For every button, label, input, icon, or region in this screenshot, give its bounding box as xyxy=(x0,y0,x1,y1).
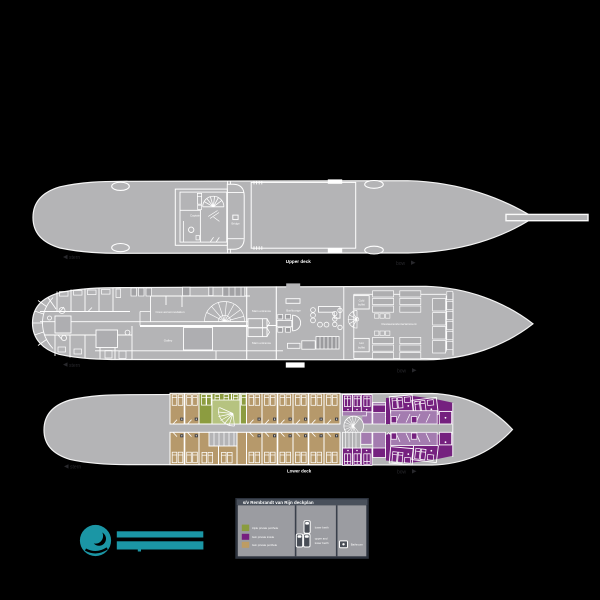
svg-text:Main entrance: Main entrance xyxy=(252,309,271,313)
svg-text:stern: stern xyxy=(69,255,80,261)
svg-text:Bar/lounge: Bar/lounge xyxy=(286,309,301,313)
svg-text:triple private porthole: triple private porthole xyxy=(252,526,279,530)
svg-text:Restaurant/entertainment: Restaurant/entertainment xyxy=(382,322,417,326)
svg-text:Lower deck: Lower deck xyxy=(287,469,312,474)
svg-text:Galley: Galley xyxy=(164,339,173,343)
svg-text:stern: stern xyxy=(69,363,80,369)
svg-text:twin private porthole: twin private porthole xyxy=(252,543,277,547)
svg-text:bow: bow xyxy=(397,469,407,475)
svg-text:Main entrance: Main entrance xyxy=(252,341,271,345)
svg-text:s/v Rembrandt van Rijn deckpla: s/v Rembrandt van Rijn deckplan xyxy=(243,500,314,505)
svg-text:stern: stern xyxy=(70,465,81,471)
svg-text:buffet: buffet xyxy=(358,303,365,307)
svg-text:lower berth: lower berth xyxy=(315,541,329,545)
svg-text:bow: bow xyxy=(396,261,406,267)
svg-text:Captain: Captain xyxy=(190,213,200,217)
svg-text:buffet: buffet xyxy=(358,345,365,349)
svg-text:lower berth: lower berth xyxy=(315,526,329,530)
svg-text:Bathroom: Bathroom xyxy=(351,543,364,547)
svg-text:bow: bow xyxy=(397,368,407,374)
svg-text:Bridge: Bridge xyxy=(232,221,241,225)
svg-text:Upper deck: Upper deck xyxy=(286,259,311,264)
svg-text:Crew accommodation: Crew accommodation xyxy=(155,310,184,314)
svg-text:twin private inside: twin private inside xyxy=(252,535,275,539)
